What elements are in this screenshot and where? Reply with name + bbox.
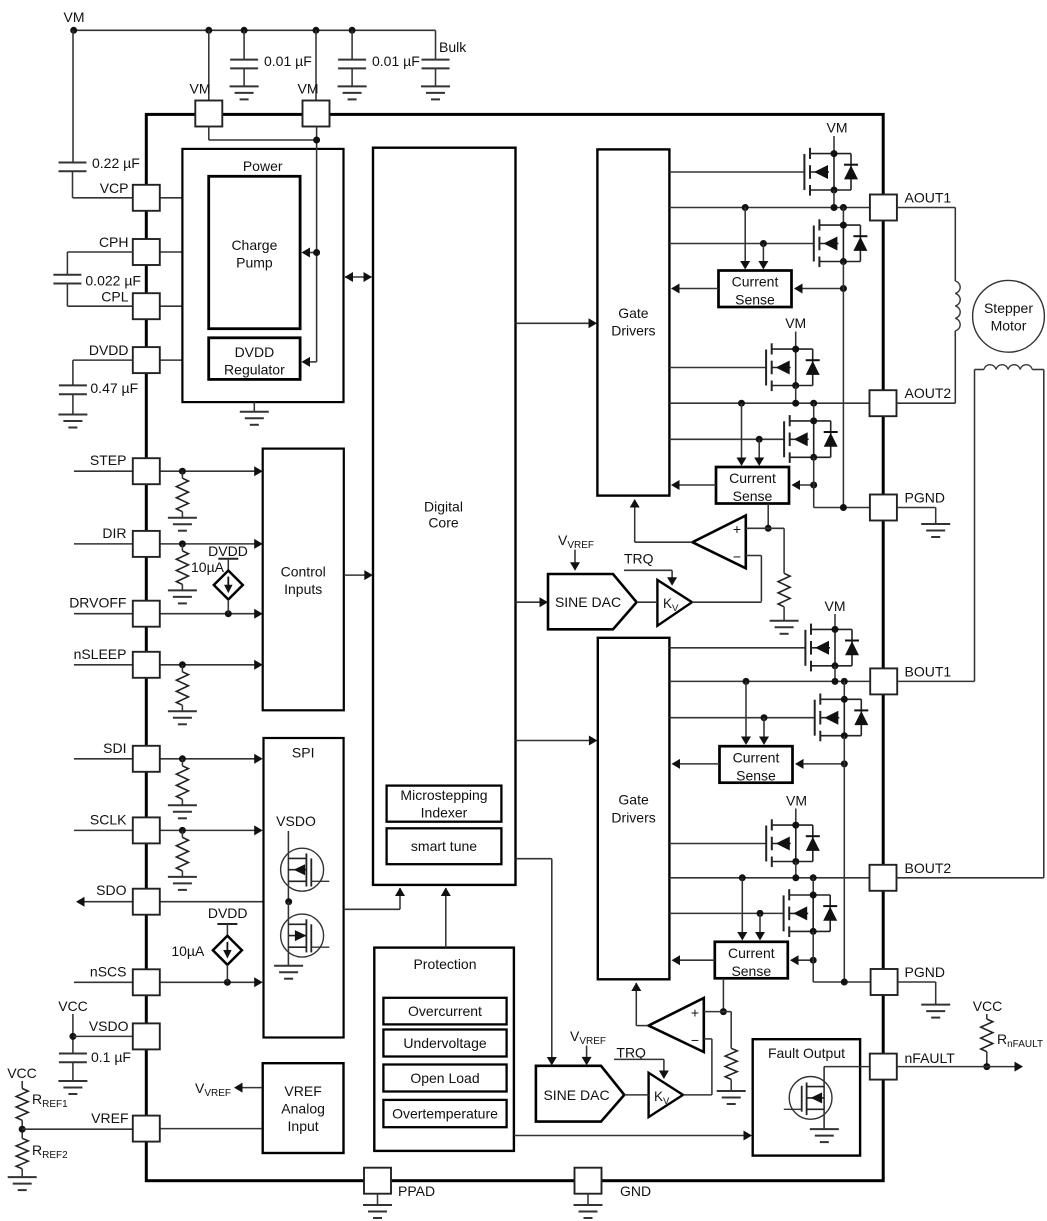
svg-text:TRQ: TRQ xyxy=(624,550,654,566)
svg-text:DVDD: DVDD xyxy=(89,342,129,358)
svg-text:0.01 µF: 0.01 µF xyxy=(264,53,312,69)
svg-text:Fault Output: Fault Output xyxy=(768,1045,845,1061)
svg-text:VM: VM xyxy=(827,120,848,136)
svg-text:Sense: Sense xyxy=(735,292,775,308)
svg-text:VCP: VCP xyxy=(100,180,129,196)
svg-text:Charge: Charge xyxy=(231,237,277,253)
svg-text:CPL: CPL xyxy=(101,288,128,304)
svg-text:VM: VM xyxy=(785,315,806,331)
svg-text:Stepper: Stepper xyxy=(984,300,1033,316)
svg-text:Sense: Sense xyxy=(731,963,771,979)
svg-text:VCC: VCC xyxy=(973,998,1003,1014)
svg-text:Current: Current xyxy=(728,945,775,961)
svg-text:Overtemperature: Overtemperature xyxy=(392,1105,498,1121)
svg-text:VREF: VREF xyxy=(284,1083,321,1099)
svg-text:VM: VM xyxy=(786,793,807,809)
svg-text:DIR: DIR xyxy=(102,525,126,541)
svg-text:VM: VM xyxy=(825,598,846,614)
svg-text:Input: Input xyxy=(288,1118,319,1134)
svg-text:VM: VM xyxy=(190,80,211,96)
svg-text:CPH: CPH xyxy=(99,234,129,250)
svg-text:−: − xyxy=(733,549,741,565)
svg-text:Pump: Pump xyxy=(236,255,273,271)
svg-text:VM: VM xyxy=(64,9,85,25)
svg-text:0.1 µF: 0.1 µF xyxy=(91,1049,131,1065)
svg-text:RREF2: RREF2 xyxy=(32,1142,68,1161)
svg-text:Current: Current xyxy=(732,274,779,290)
svg-text:RnFAULT: RnFAULT xyxy=(997,1031,1043,1050)
svg-text:0.47 µF: 0.47 µF xyxy=(90,380,138,396)
svg-text:GND: GND xyxy=(620,1183,651,1199)
svg-text:TRQ: TRQ xyxy=(616,1045,646,1061)
svg-text:BOUT1: BOUT1 xyxy=(905,663,952,679)
svg-text:BOUT2: BOUT2 xyxy=(905,860,952,876)
svg-text:Core: Core xyxy=(428,515,459,531)
svg-text:VSDO: VSDO xyxy=(276,813,316,829)
svg-text:nFAULT: nFAULT xyxy=(905,1050,956,1066)
svg-text:10µA: 10µA xyxy=(191,559,225,575)
svg-text:Control: Control xyxy=(281,564,326,580)
svg-text:AOUT2: AOUT2 xyxy=(905,385,952,401)
svg-text:Overcurrent: Overcurrent xyxy=(408,1003,482,1019)
svg-text:0.022 µF: 0.022 µF xyxy=(85,273,141,289)
svg-text:VCC: VCC xyxy=(58,998,88,1014)
svg-text:VSDO: VSDO xyxy=(89,1018,129,1034)
svg-text:Inputs: Inputs xyxy=(284,581,322,597)
svg-text:PGND: PGND xyxy=(905,490,945,506)
svg-text:Digital: Digital xyxy=(424,499,463,515)
svg-text:Sense: Sense xyxy=(736,767,776,783)
svg-text:Drivers: Drivers xyxy=(611,810,655,826)
svg-text:SCLK: SCLK xyxy=(90,811,127,827)
svg-text:SPI: SPI xyxy=(292,745,315,761)
svg-text:SINE DAC: SINE DAC xyxy=(555,594,621,610)
svg-text:Gate: Gate xyxy=(618,792,649,808)
svg-text:RREF1: RREF1 xyxy=(32,1091,68,1110)
svg-text:0.01 µF: 0.01 µF xyxy=(372,53,420,69)
svg-text:Motor: Motor xyxy=(991,318,1027,334)
svg-text:SDI: SDI xyxy=(103,740,126,756)
svg-text:Current: Current xyxy=(729,470,776,486)
svg-text:Undervoltage: Undervoltage xyxy=(403,1035,486,1051)
svg-text:Regulator: Regulator xyxy=(224,362,285,378)
svg-text:VREF: VREF xyxy=(91,1110,128,1126)
svg-text:DRVOFF: DRVOFF xyxy=(69,595,126,611)
svg-text:Analog: Analog xyxy=(281,1100,325,1116)
svg-text:DVDD: DVDD xyxy=(208,905,248,921)
svg-text:SDO: SDO xyxy=(96,882,126,898)
svg-text:Microstepping: Microstepping xyxy=(400,787,487,803)
svg-text:Protection: Protection xyxy=(413,956,476,972)
svg-text:−: − xyxy=(691,1032,699,1048)
svg-text:nSCS: nSCS xyxy=(90,963,127,979)
svg-text:VM: VM xyxy=(298,80,319,96)
svg-text:Open Load: Open Load xyxy=(410,1070,479,1086)
svg-text:Drivers: Drivers xyxy=(611,323,655,339)
svg-text:SINE DAC: SINE DAC xyxy=(543,1087,609,1103)
svg-text:0.22 µF: 0.22 µF xyxy=(92,155,140,171)
svg-text:Bulk: Bulk xyxy=(439,39,467,55)
svg-text:Gate: Gate xyxy=(618,305,649,321)
svg-text:DVDD: DVDD xyxy=(235,344,275,360)
svg-text:PPAD: PPAD xyxy=(398,1183,435,1199)
svg-text:Current: Current xyxy=(733,749,780,765)
svg-text:VCC: VCC xyxy=(7,1065,37,1081)
svg-text:DVDD: DVDD xyxy=(208,543,248,559)
svg-text:Power: Power xyxy=(243,158,283,174)
svg-text:AOUT1: AOUT1 xyxy=(905,190,952,206)
svg-text:PGND: PGND xyxy=(905,964,945,980)
svg-text:Indexer: Indexer xyxy=(421,805,468,821)
svg-text:10µA: 10µA xyxy=(171,943,205,959)
svg-text:+: + xyxy=(691,1005,699,1021)
svg-text:nSLEEP: nSLEEP xyxy=(74,646,127,662)
svg-text:+: + xyxy=(733,521,741,537)
svg-text:Sense: Sense xyxy=(733,488,773,504)
svg-text:STEP: STEP xyxy=(90,452,127,468)
svg-text:smart tune: smart tune xyxy=(411,838,477,854)
